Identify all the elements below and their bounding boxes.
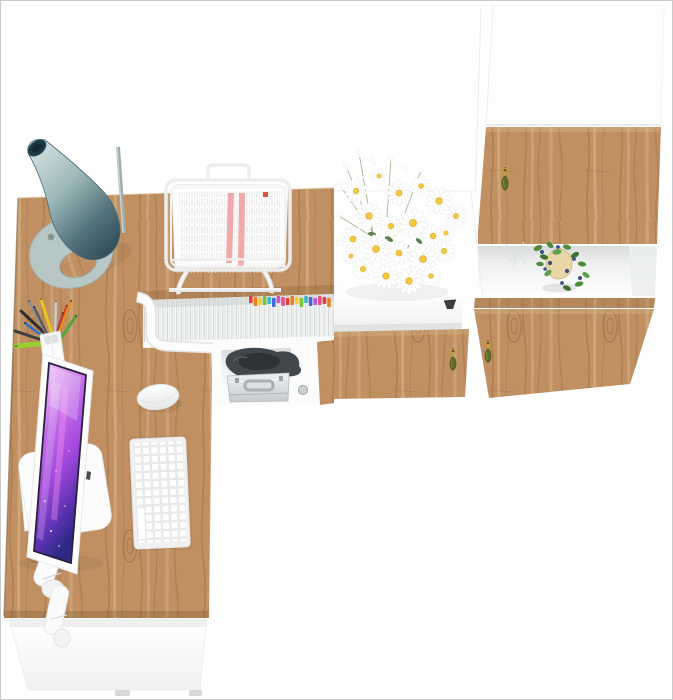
cabinet-top-panel [486,5,665,125]
sideboard-key [450,348,456,370]
binder-tab [263,296,267,305]
binder-tab [277,296,281,303]
pen-tip [40,298,42,300]
binder-tab [318,296,322,305]
pen-tip [28,300,30,302]
pen-tip [33,306,35,308]
binder-tab [309,297,313,306]
silver-knob [299,386,308,395]
binder-tab [295,297,299,304]
binder-tab [254,297,258,306]
binder-tab [290,296,294,305]
binder-tab [267,297,271,304]
tall-cabinet [472,5,665,398]
keyboard [128,435,193,552]
front-panel [9,619,207,696]
binder-tab [323,297,327,304]
pen-tip [62,312,64,314]
pen-tip [55,300,57,302]
binder-tab [249,296,253,303]
binder-tab [313,298,317,305]
binder-tab [327,298,331,307]
cabinet-lower-key [485,340,491,362]
pen-tip [75,315,77,317]
binder-tab [304,296,308,303]
sideboard-drawer [327,329,469,399]
paper-red-mark [263,192,268,197]
panel-foot [115,690,130,696]
paper-red-stripe [238,193,245,267]
binder-tab [258,298,262,305]
pen-tip [14,330,16,332]
panel-foot [189,690,202,696]
binder-tab [281,297,285,306]
pen-tip [70,300,72,302]
render-canvas [0,0,673,700]
cabinet-upper-key [502,167,508,190]
pen-tip [24,322,26,324]
pen-tip [20,310,22,312]
pen-tip [15,345,17,347]
binder-tab [272,298,276,307]
binder-tab [300,298,304,307]
spacebar-key [137,508,146,540]
binder-tab [286,298,290,305]
